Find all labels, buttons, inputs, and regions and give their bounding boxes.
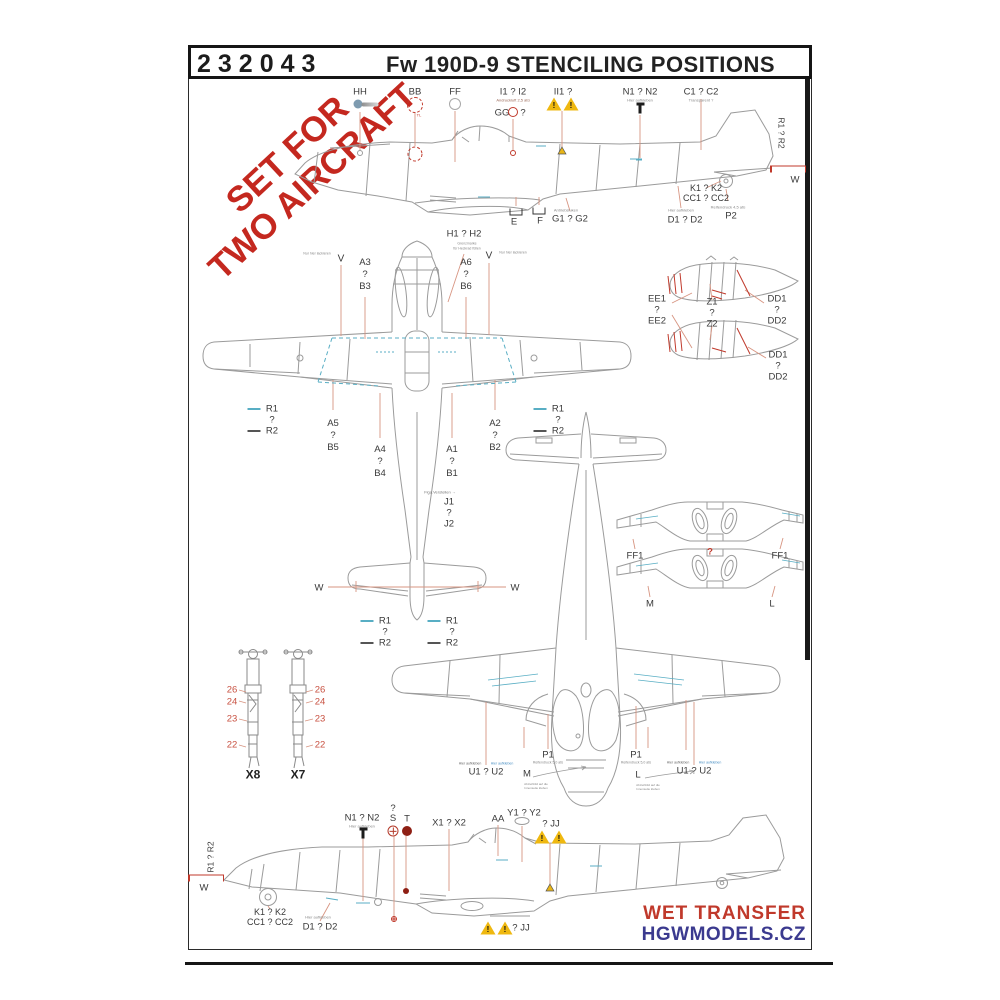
label-t: T — [404, 814, 410, 825]
label-u1-u2-right: U1 ? U2 — [677, 766, 712, 777]
label-l-cowl: L — [769, 599, 774, 610]
caption-m-bay: Abziehbild auf dieInnenseite kleben — [524, 782, 548, 790]
label-jj-upper: ? JJ — [542, 819, 559, 830]
label-bb: BB — [409, 87, 422, 98]
label-a3-b3: A3?B3 — [359, 257, 371, 293]
caption-v-left: Nur hier lackieren — [303, 249, 330, 260]
ring-red-small-icon — [508, 107, 518, 117]
brand-block: WET TRANSFER HGWMODELS.CZ — [642, 903, 806, 945]
warning-triangle-icon — [535, 831, 550, 844]
label-dd1-dd2-bottom: DD1?DD2 — [768, 350, 787, 383]
dash-dark-icon — [428, 642, 441, 644]
label-m-bay: M — [523, 769, 531, 780]
bracket-icon — [533, 208, 546, 215]
label-w-tailplane-left: W — [315, 583, 324, 594]
gear-right-26: 26 — [315, 685, 326, 696]
label-r1-r2-tail-left: R1?R2 — [379, 616, 391, 649]
label-j1-j2: J1?J2 — [444, 497, 454, 530]
label-k1-k2-cc1-cc2-top: K1 ? K2CC1 ? CC2 — [683, 183, 729, 203]
bracket-icon — [510, 209, 523, 216]
label-g1-g2: G1 ? G2 — [552, 214, 588, 225]
label-aa: AA — [492, 814, 505, 825]
dash-cyan-icon — [361, 620, 374, 622]
label-x7: X7 — [291, 770, 306, 781]
gear-right-23: 23 — [315, 714, 326, 725]
brand-hgwmodels-url[interactable]: HGWMODELS.CZ — [642, 924, 806, 945]
caption-h1-h2: Grenzmarkefür Heckrad füllen — [453, 242, 480, 251]
label-r1-r2-left-rotated: R1 ? R2 — [206, 841, 217, 872]
label-x8: X8 — [246, 770, 261, 781]
gear-right-24: 24 — [315, 697, 326, 708]
dash-cyan-icon — [428, 620, 441, 622]
caption-p1-right: Reifendruck 5,0 atü — [621, 758, 651, 769]
gear-left-24: 24 — [227, 697, 238, 708]
pin-black-icon — [362, 830, 365, 839]
label-ff: FF — [449, 87, 461, 98]
caption-i1-i2: Andruckluft 2,5 atü — [496, 95, 529, 106]
dash-dark-icon — [248, 430, 261, 432]
warning-triangle-icon — [498, 922, 513, 935]
label-e: E — [511, 217, 517, 228]
label-w-right: W — [791, 175, 800, 186]
gear-left-26: 26 — [227, 685, 238, 696]
gear-left-22: 22 — [227, 740, 238, 751]
caption-v-right: Nur hier lackieren — [499, 248, 526, 259]
label-d1-d2-top: D1 ? D2 — [668, 215, 703, 226]
caption-p1-left: Reifendruck 5,0 atü — [533, 758, 563, 769]
pin-black-icon — [639, 105, 642, 114]
label-v-left: V — [338, 254, 345, 265]
label-a6-b6: A6?B6 — [460, 257, 472, 293]
stencil-sheet: 232043 Fw 190D-9 STENCILING POSITIONS SE… — [0, 0, 1000, 1000]
label-x1-x2: X1 ? X2 — [432, 818, 466, 829]
label-r1-r2-right-rotated: R1 ? R2 — [776, 117, 787, 148]
label-p2: P2 — [725, 211, 737, 222]
oval-gray-icon — [515, 817, 530, 825]
gear-left-23: 23 — [227, 714, 238, 725]
label-a4-b4: A4?B4 — [374, 444, 386, 480]
label-w-bottom: W — [200, 883, 209, 894]
warning-triangle-icon — [481, 922, 496, 935]
brand-wet-transfer: WET TRANSFER — [642, 903, 806, 924]
warning-triangle-icon — [547, 98, 562, 111]
caption-c1-c2: Transparent ? — [689, 95, 714, 106]
caption-l-bay: Abziehbild auf dieInnenseite kleben — [636, 783, 660, 791]
label-jj-lower: ? JJ — [512, 923, 529, 934]
dash-dark-icon — [534, 430, 547, 432]
label-w-tailplane-right: W — [511, 583, 520, 594]
label-z1-z2: Z1?Z2 — [706, 297, 717, 330]
rivet-blue-icon — [354, 100, 363, 109]
label-ee1-ee2: EE1?EE2 — [648, 294, 666, 327]
annotations-layer: HHBBTLFFI1 ? I2Andruckluft 2,5 atüGG?II1… — [0, 0, 1000, 1000]
circle-cross-red-icon — [388, 826, 399, 837]
label-r1-r2-wing-right: R1?R2 — [552, 404, 564, 437]
label-f: F — [537, 216, 543, 227]
label-a1-b1: A1?B1 — [446, 444, 458, 480]
label-d1-d2-bottom: D1 ? D2 — [303, 922, 338, 933]
dash-cyan-icon — [534, 408, 547, 410]
dash-dark-icon — [361, 642, 374, 644]
warning-triangle-icon — [552, 831, 567, 844]
label-r1-r2-wing-left: R1?R2 — [266, 404, 278, 437]
label-dd1-dd2-top: DD1?DD2 — [767, 294, 786, 327]
label-gg-question: ? — [520, 108, 525, 119]
ring-gray-icon — [449, 98, 461, 110]
label-ff1-right: FF1 — [772, 551, 789, 562]
label-m-cowl: M — [646, 599, 654, 610]
gear-right-22: 22 — [315, 740, 326, 751]
label-k1-k2-cc1-cc2-bottom: K1 ? K2CC1 ? CC2 — [247, 907, 293, 927]
caption-bb: TL — [417, 110, 422, 121]
label-cowl-question: ? — [707, 547, 713, 558]
label-h1-h2: H1 ? H2 — [447, 229, 482, 240]
label-ii1: II1 ? — [554, 87, 573, 98]
label-hh: HH — [353, 87, 367, 98]
label-u1-u2-left: U1 ? U2 — [469, 767, 504, 778]
wbracket-red-icon — [770, 166, 806, 175]
warning-triangle-icon — [564, 98, 579, 111]
label-a5-b5: A5?B5 — [327, 418, 339, 454]
label-ff1-left: FF1 — [627, 551, 644, 562]
label-l-bay: L — [635, 770, 640, 781]
dash-cyan-icon — [248, 408, 261, 410]
label-s: ?S — [390, 804, 396, 824]
label-a2-b2: A2?B2 — [489, 418, 501, 454]
label-v-right: V — [486, 251, 493, 262]
dot-darkred-icon — [402, 826, 412, 836]
label-r1-r2-tail-right: R1?R2 — [446, 616, 458, 649]
